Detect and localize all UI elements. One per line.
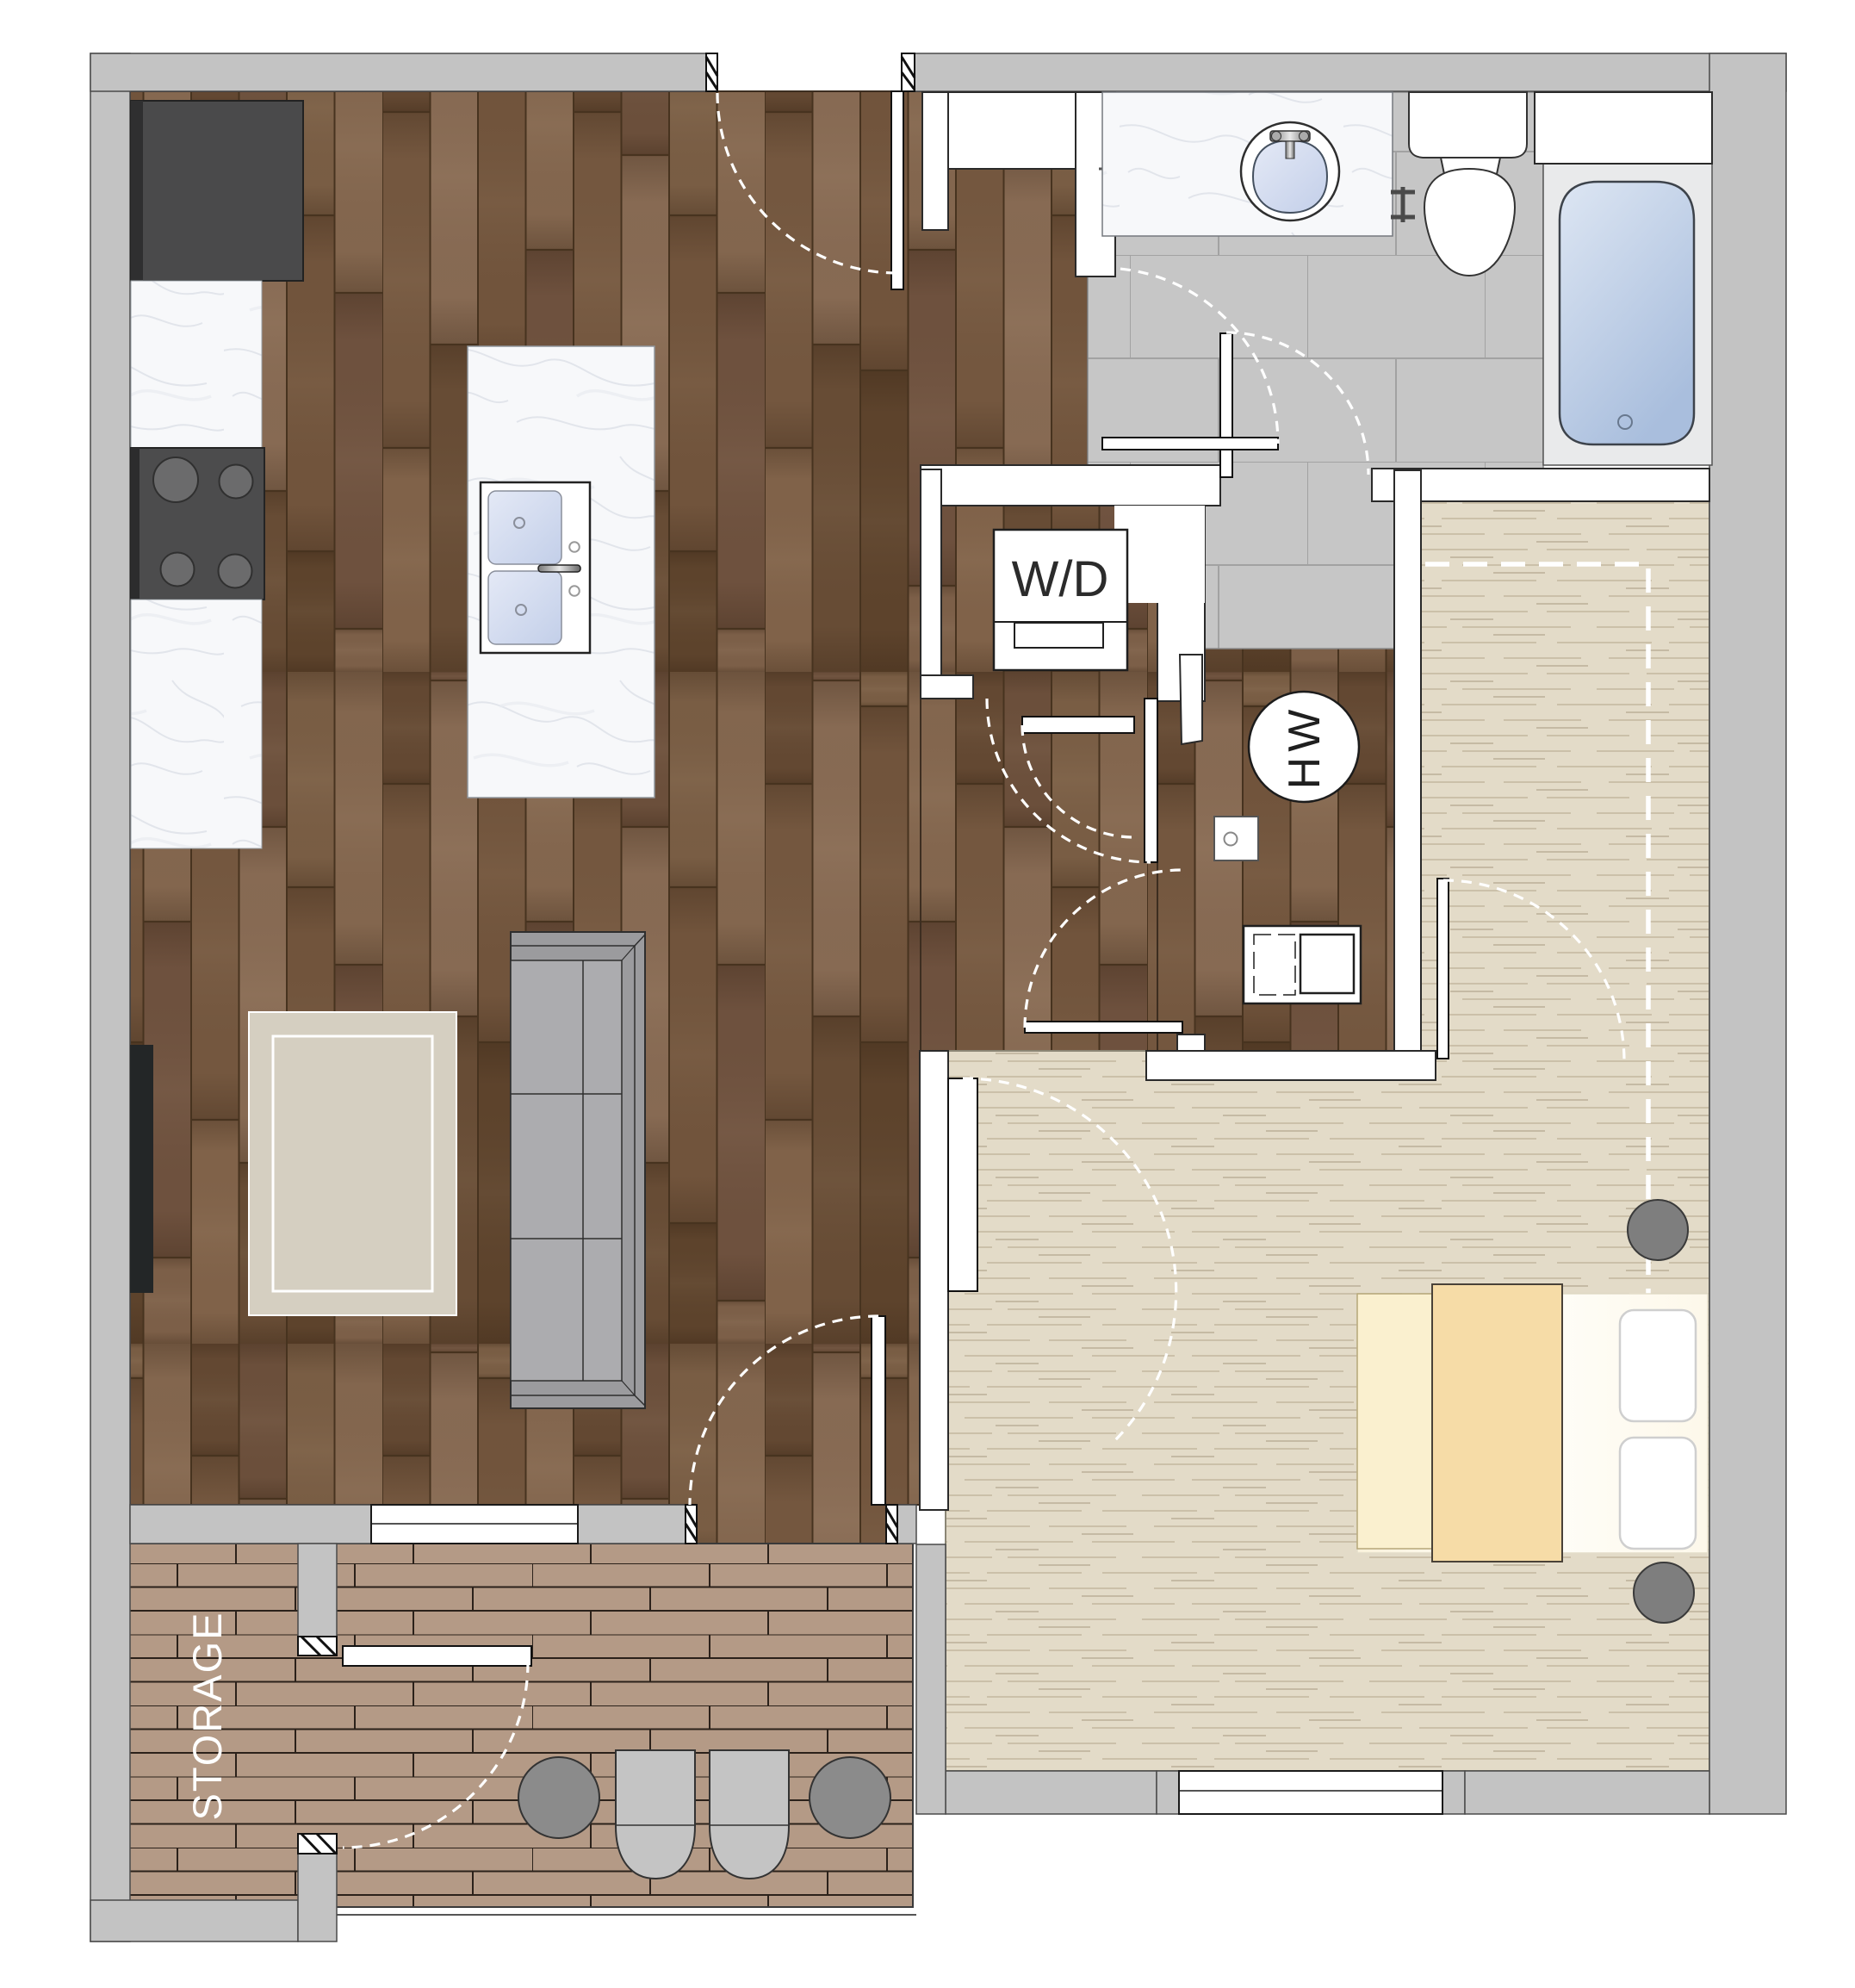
svg-text:STORAGE: STORAGE xyxy=(184,1612,230,1821)
svg-text:HW: HW xyxy=(1280,705,1330,790)
svg-text:W/D: W/D xyxy=(1012,551,1109,607)
